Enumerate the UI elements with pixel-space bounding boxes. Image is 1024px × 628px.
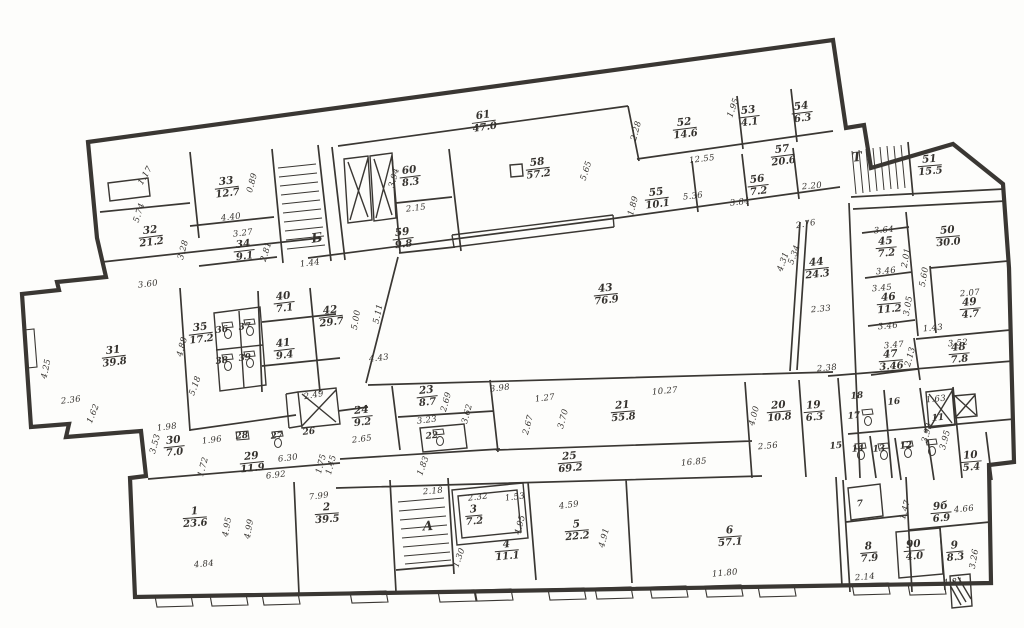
dimension-label: 1.43	[923, 324, 944, 335]
room-label: 608.3	[398, 164, 421, 190]
room-label: 457.2	[875, 235, 898, 260]
stair-letter-label: А	[422, 520, 433, 534]
room-label: 4376.9	[593, 282, 620, 308]
room-number-label: 38	[215, 357, 229, 368]
room-number-label: 15	[829, 442, 842, 452]
room-label: 4611.2	[876, 291, 902, 317]
room-label: 196.3	[803, 399, 826, 424]
room-label: 5857.2	[524, 156, 551, 182]
room-label: 249.2	[351, 404, 374, 430]
room-label: 307.0	[163, 434, 186, 460]
room-label: 349.1	[232, 238, 255, 264]
room-label: 494.7	[959, 296, 982, 321]
room-label: 522.2	[564, 518, 590, 544]
dimension-label: 4.84	[194, 560, 215, 571]
room-label: 534.1	[737, 104, 760, 130]
stair-letter-label: Б	[311, 231, 324, 246]
room-number-label: 27	[270, 432, 283, 443]
room-label: 87.9	[859, 541, 878, 566]
room-number-label: 37	[238, 323, 252, 334]
dimension-label: 2.14	[855, 573, 876, 584]
room-number-label: 28	[235, 432, 248, 443]
room-label: 411.1	[494, 538, 520, 564]
room-number-label: 36	[215, 326, 229, 337]
room-number-label: 17	[847, 412, 860, 422]
room-label: 3517.2	[187, 321, 214, 347]
room-label: 567.2	[746, 173, 769, 199]
room-label: 5720.6	[769, 143, 796, 169]
room-label: 3312.7	[213, 175, 240, 201]
window-sills	[24, 329, 946, 607]
room-number-label: 11	[931, 414, 944, 424]
toilet-bowls	[225, 327, 936, 460]
dimension-label: 2.20	[802, 182, 823, 193]
room-label: 6147.0	[470, 109, 497, 136]
room-label: 5115.5	[917, 153, 943, 179]
dimension-label: 3.46	[878, 322, 899, 333]
room-label: 407.1	[272, 290, 295, 316]
room-label: 4229.7	[317, 304, 344, 330]
room-label: 9б6.9	[930, 500, 953, 525]
toilet-tanks	[222, 319, 937, 449]
floor-plan: 123.6239.537.2411.1522.2657.1787.99б6.99…	[0, 0, 1024, 628]
room-number-label: 14	[851, 445, 864, 455]
room-label: 238.7	[416, 384, 439, 410]
dimension-label: 4.66	[954, 505, 975, 516]
room-label: 2911.9	[239, 450, 266, 476]
room-number-label: 26	[302, 428, 315, 439]
dimension-label: 3.64	[874, 226, 895, 237]
room-label: 2155.8	[610, 399, 636, 425]
room-label: 37.2	[464, 504, 483, 529]
room-label: 3221.2	[137, 224, 164, 250]
room-label: 123.6	[182, 505, 208, 530]
dimension-label: 1.63	[926, 395, 947, 406]
room-label: 5510.1	[643, 186, 670, 212]
dimension-label: 2.38	[817, 364, 838, 375]
dimension-label: 2.07	[960, 289, 981, 300]
room-label: 3139.8	[100, 344, 127, 370]
room-number-label: 16	[887, 398, 900, 408]
room-label: 657.1	[717, 524, 743, 549]
floor-plan-walls	[0, 0, 1024, 628]
room-label: 105.4	[960, 449, 983, 474]
dimension-label: 3.52	[948, 339, 969, 350]
room-label: 2569.2	[557, 450, 583, 476]
room-number-label: 13	[872, 445, 885, 455]
room-number-label: 12	[899, 442, 912, 452]
dimension-label: 2.56	[758, 442, 779, 453]
room-label: 98.3	[945, 540, 964, 565]
stair-letter-label: Т	[852, 151, 863, 165]
room-number-label: 22	[425, 432, 438, 442]
room-number-label: 39	[238, 354, 252, 365]
room-number-label: 18	[850, 392, 863, 402]
dimension-label: 2.18	[423, 487, 444, 498]
room-label: 419.4	[272, 337, 295, 363]
dimension-label: 3.45	[872, 284, 893, 295]
room-label: 2010.8	[766, 399, 792, 425]
dimension-label: 4.81	[943, 578, 964, 589]
room-label: 473.46	[878, 348, 904, 374]
room-number-label: 7	[856, 500, 863, 510]
room-label: 239.5	[314, 501, 340, 526]
room-label: 5030.0	[935, 224, 961, 250]
room-label: 904.0	[903, 538, 926, 563]
dimension-label: 3.46	[876, 267, 897, 278]
room-label: 546.3	[790, 100, 813, 126]
room-label: 4424.3	[804, 256, 831, 282]
dimension-label: 2.33	[811, 305, 832, 316]
dimension-label: 3.47	[884, 341, 905, 352]
room-label: 5214.6	[671, 116, 698, 142]
room-label: 599.8	[391, 226, 414, 252]
